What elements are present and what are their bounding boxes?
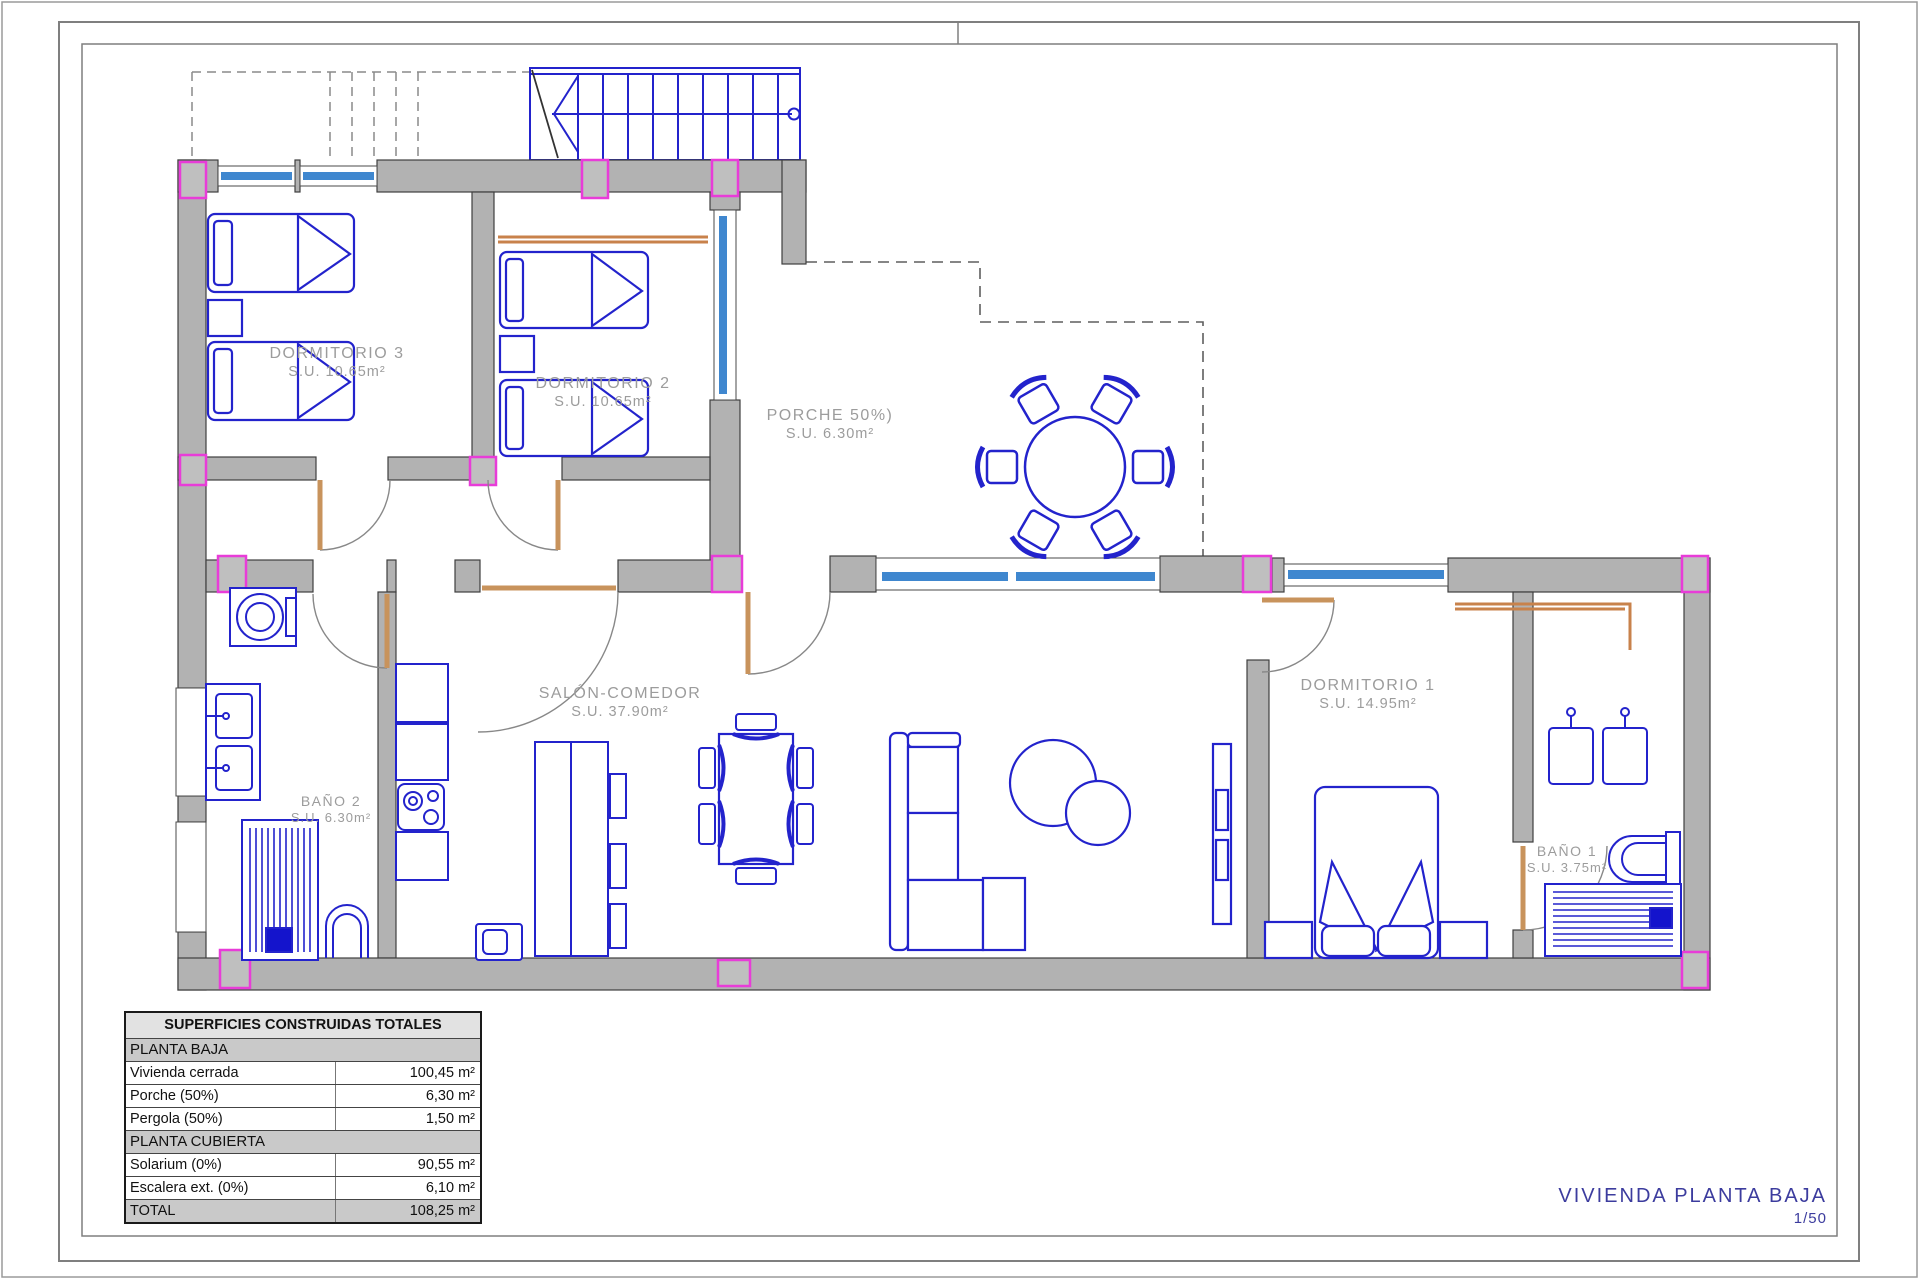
furniture-dormitorio3 [208, 214, 354, 420]
label-bano1: BAÑO 1 [1537, 843, 1597, 859]
tv-unit [1213, 744, 1231, 924]
window-glass-dorm2 [719, 216, 727, 394]
furniture-dormitorio1 [1265, 787, 1487, 958]
table-row: Escalera ext. (0%) 6,10 m² [126, 1176, 480, 1199]
pillow [1322, 926, 1374, 956]
door-arc-dorm2 [488, 480, 558, 550]
label-dormitorio2: DORMITORIO 2 [535, 375, 670, 392]
closet-dorm1 [1455, 604, 1630, 650]
nightstand [1440, 922, 1487, 958]
window-glass-salon-b [1016, 572, 1155, 581]
nightstand [1265, 922, 1312, 958]
pillow [1378, 926, 1430, 956]
row-value: 6,10 m² [336, 1177, 480, 1199]
area-dormitorio3: S.U. 10.65m² [288, 364, 385, 380]
closet-dorm2 [498, 237, 708, 242]
sofa-back [890, 733, 908, 950]
row-label: Solarium (0%) [126, 1154, 336, 1176]
table-row: Vivienda cerrada 100,45 m² [126, 1061, 480, 1084]
furniture-dormitorio2 [500, 252, 648, 456]
dining-set [699, 714, 813, 884]
coffee-table-small [1066, 781, 1130, 845]
porch-table-set [978, 373, 1173, 562]
window-glass-dorm1 [1288, 570, 1444, 579]
title-block: VIVIENDA PLANTA BAJA 1/50 [1407, 1185, 1827, 1227]
sink [1549, 728, 1593, 784]
area-salon: S.U. 37.90m² [571, 704, 668, 720]
living-furniture [890, 733, 1231, 950]
row-value: 100,45 m² [336, 1062, 480, 1084]
area-bano2: S.U. 6.30m² [291, 810, 371, 825]
label-salon: SALÓN-COMEDOR [539, 683, 702, 702]
sofa-chaise [908, 880, 983, 950]
shower-drain [1650, 908, 1672, 928]
drawing-title: VIVIENDA PLANTA BAJA [1407, 1185, 1827, 1208]
row-value: 1,50 m² [336, 1108, 480, 1130]
table-row: Pergola (50%) 1,50 m² [126, 1107, 480, 1130]
area-dormitorio1: S.U. 14.95m² [1319, 696, 1416, 712]
areas-table-section-planta-baja: PLANTA BAJA [126, 1038, 480, 1061]
row-value: 90,55 m² [336, 1154, 480, 1176]
bano2-fixtures [206, 588, 368, 960]
areas-table: SUPERFICIES CONSTRUIDAS TOTALES PLANTA B… [124, 1011, 482, 1224]
bano1-fixtures [1545, 708, 1681, 956]
row-label: Pergola (50%) [126, 1108, 336, 1130]
door-arc-dorm1 [1262, 600, 1334, 672]
drawing-scale: 1/50 [1407, 1210, 1827, 1227]
areas-table-total-row: TOTAL 108,25 m² [126, 1199, 480, 1222]
door-arc-dorm3 [320, 480, 390, 550]
window-glass-dorm3b [303, 172, 374, 180]
door-arc-entrance [748, 592, 830, 674]
total-label: TOTAL [126, 1200, 336, 1222]
window-glass-salon-a [882, 572, 1008, 581]
total-value: 108,25 m² [336, 1200, 480, 1222]
label-porche: PORCHE 50%) [767, 407, 894, 424]
areas-table-section-planta-cubierta: PLANTA CUBIERTA [126, 1130, 480, 1153]
exterior-stairs [530, 68, 800, 160]
label-dormitorio1: DORMITORIO 1 [1300, 677, 1435, 694]
label-dormitorio3: DORMITORIO 3 [269, 345, 404, 362]
label-bano2: BAÑO 2 [301, 793, 361, 809]
row-label: Escalera ext. (0%) [126, 1177, 336, 1199]
window-glass-dorm3 [221, 172, 292, 180]
sink [1603, 728, 1647, 784]
row-value: 6,30 m² [336, 1085, 480, 1107]
area-bano1: S.U. 3.75m² [1527, 860, 1607, 875]
table-row: Solarium (0%) 90,55 m² [126, 1153, 480, 1176]
shower-drain [266, 928, 292, 952]
pergola-outline [192, 72, 530, 160]
area-porche: S.U. 6.30m² [786, 426, 874, 442]
door-arc-bano2 [313, 594, 387, 668]
areas-table-title: SUPERFICIES CONSTRUIDAS TOTALES [126, 1013, 480, 1038]
row-label: Porche (50%) [126, 1085, 336, 1107]
drawing-sheet: DORMITORIO 3 S.U. 10.65m² DORMITORIO 2 S… [0, 0, 1920, 1280]
row-label: Vivienda cerrada [126, 1062, 336, 1084]
table-row: Porche (50%) 6,30 m² [126, 1084, 480, 1107]
area-dormitorio2: S.U. 10.65m² [554, 394, 651, 410]
